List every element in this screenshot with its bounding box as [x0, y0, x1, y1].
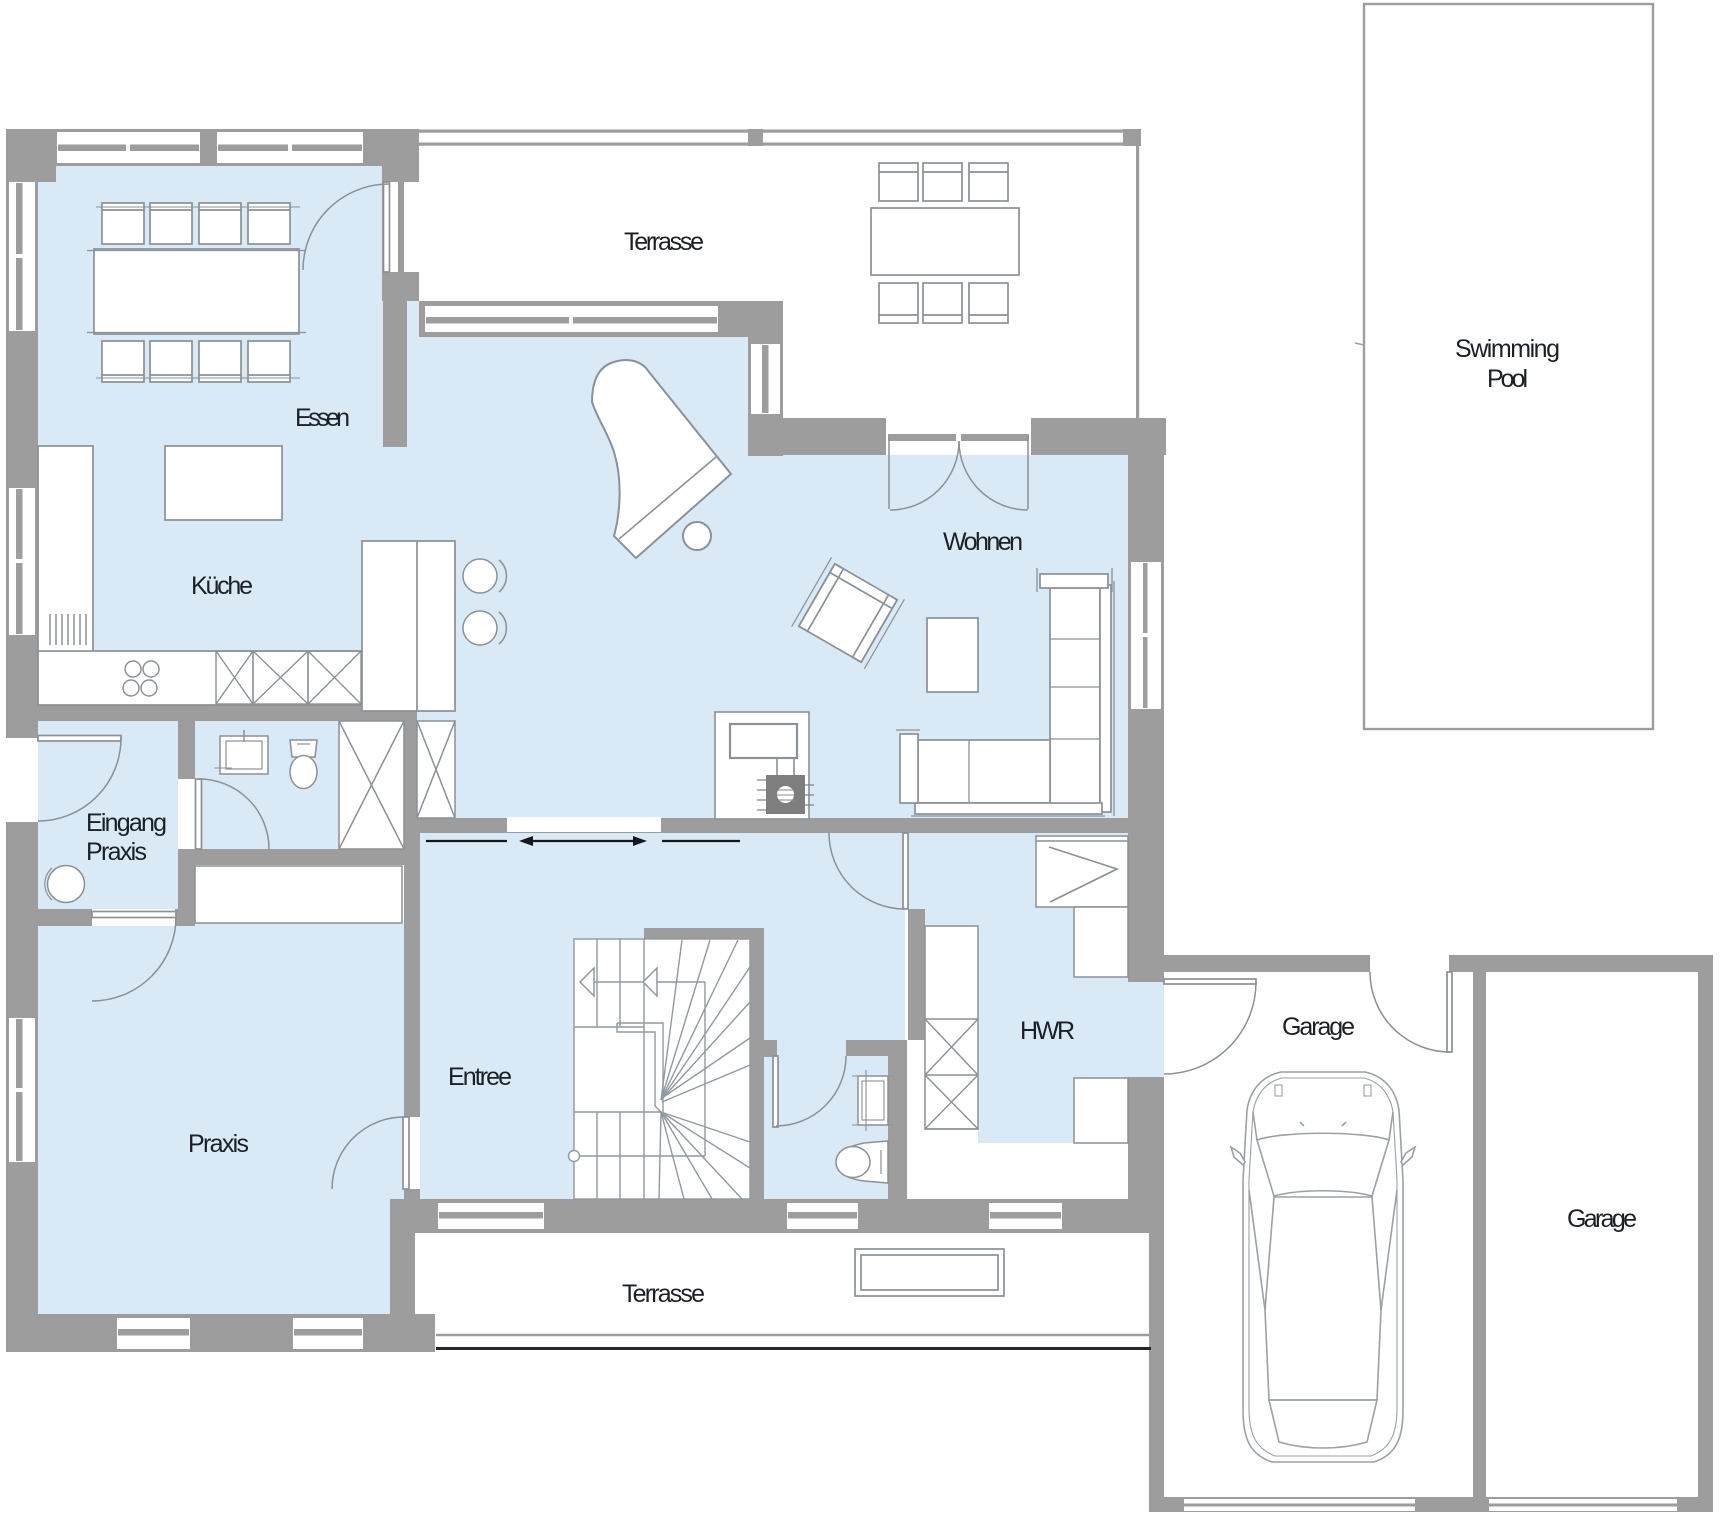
- svg-text:Garage: Garage: [1282, 1013, 1355, 1041]
- svg-text:Swimming: Swimming: [1455, 335, 1560, 363]
- svg-text:Küche: Küche: [191, 572, 253, 600]
- svg-text:Praxis: Praxis: [86, 838, 147, 866]
- svg-text:Garage: Garage: [1567, 1205, 1637, 1233]
- svg-text:Wohnen: Wohnen: [943, 528, 1023, 556]
- svg-text:Terrasse: Terrasse: [622, 1280, 705, 1308]
- svg-text:Entree: Entree: [448, 1063, 512, 1091]
- svg-text:Eingang: Eingang: [86, 809, 167, 837]
- svg-text:Pool: Pool: [1487, 365, 1528, 393]
- svg-text:Praxis: Praxis: [188, 1130, 249, 1158]
- svg-text:Essen: Essen: [295, 404, 350, 432]
- svg-text:Terrasse: Terrasse: [624, 228, 704, 256]
- svg-text:HWR: HWR: [1020, 1017, 1075, 1045]
